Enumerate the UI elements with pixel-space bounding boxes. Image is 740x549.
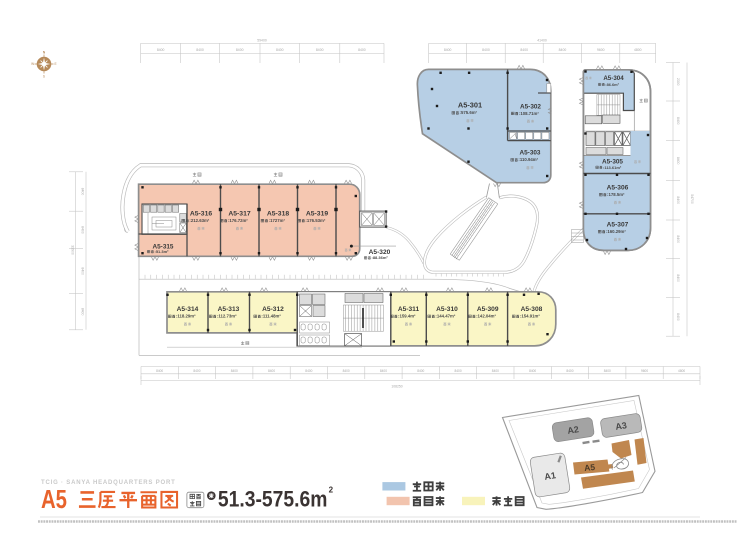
svg-text::159.4m²: :159.4m² xyxy=(398,314,416,319)
svg-text:A2: A2 xyxy=(567,424,580,436)
svg-text:8400: 8400 xyxy=(455,369,462,373)
svg-text:8400: 8400 xyxy=(676,235,680,243)
svg-text:8400: 8400 xyxy=(358,48,366,52)
svg-text::111.48m²: :111.48m² xyxy=(261,314,281,319)
svg-text:51.3-575.6m: 51.3-575.6m xyxy=(218,487,328,512)
svg-text:A5-319: A5-319 xyxy=(306,211,329,218)
svg-text:A5: A5 xyxy=(41,484,67,514)
svg-text:E: E xyxy=(55,62,57,66)
svg-text:8400: 8400 xyxy=(196,48,204,52)
svg-text::142.04m²: :142.04m² xyxy=(476,314,496,319)
svg-text:8400: 8400 xyxy=(343,369,350,373)
svg-text:8400: 8400 xyxy=(81,188,85,196)
svg-text:A5-310: A5-310 xyxy=(436,306,458,313)
svg-text:A5: A5 xyxy=(584,462,596,473)
svg-text:2: 2 xyxy=(329,485,334,494)
svg-text:A5-301: A5-301 xyxy=(458,101,482,110)
svg-text:8400: 8400 xyxy=(492,369,499,373)
svg-text:8400: 8400 xyxy=(559,48,567,52)
svg-text:8400: 8400 xyxy=(268,369,275,373)
svg-text:8400: 8400 xyxy=(520,48,528,52)
svg-text:8400: 8400 xyxy=(316,48,324,52)
svg-text:A3: A3 xyxy=(615,420,628,432)
svg-text::112.73m²: :112.73m² xyxy=(217,314,237,319)
svg-text:33900: 33900 xyxy=(71,245,75,255)
svg-text:8400: 8400 xyxy=(305,369,312,373)
svg-text:8400: 8400 xyxy=(676,157,680,165)
svg-text::154.91m²: :154.91m² xyxy=(520,314,540,319)
svg-text:W: W xyxy=(31,62,34,66)
svg-text::176.72m²: :176.72m² xyxy=(228,218,248,223)
svg-text:A5-311: A5-311 xyxy=(398,306,420,313)
svg-text:8400: 8400 xyxy=(529,369,536,373)
svg-text::178.5m²: :178.5m² xyxy=(607,192,625,197)
svg-text:54700: 54700 xyxy=(690,194,694,204)
svg-text:9600: 9600 xyxy=(641,369,648,373)
svg-text:8400: 8400 xyxy=(81,226,85,234)
svg-text:2300: 2300 xyxy=(676,78,680,86)
svg-text:S: S xyxy=(43,74,45,78)
svg-text:8400: 8400 xyxy=(676,313,680,321)
svg-text:59400: 59400 xyxy=(257,38,267,42)
svg-text:8400: 8400 xyxy=(676,117,680,125)
svg-text:A5-302: A5-302 xyxy=(520,103,541,110)
svg-text:8400: 8400 xyxy=(380,369,387,373)
svg-text:A5-309: A5-309 xyxy=(477,306,499,313)
svg-text::113.61m²: :113.61m² xyxy=(603,165,622,170)
svg-text:8400: 8400 xyxy=(81,267,85,275)
svg-text:A1: A1 xyxy=(544,470,557,482)
svg-text:8400: 8400 xyxy=(604,369,611,373)
svg-text:A5-316: A5-316 xyxy=(190,211,213,218)
svg-text::110.94m²: :110.94m² xyxy=(518,157,538,162)
svg-text:A5-317: A5-317 xyxy=(228,211,251,218)
svg-text:41400: 41400 xyxy=(537,38,547,42)
svg-text:A5-313: A5-313 xyxy=(218,306,240,313)
svg-text:8400: 8400 xyxy=(676,274,680,282)
svg-text:A5-307: A5-307 xyxy=(607,222,629,229)
svg-text:4800: 4800 xyxy=(634,48,642,52)
svg-text:8400: 8400 xyxy=(156,369,163,373)
svg-text:8400: 8400 xyxy=(236,48,244,52)
svg-text::88.36m²: :88.36m² xyxy=(372,255,389,260)
svg-text::575.6m²: :575.6m² xyxy=(460,110,478,115)
svg-text:108250: 108250 xyxy=(391,385,402,389)
svg-text:8400: 8400 xyxy=(482,48,490,52)
svg-text:A5-303: A5-303 xyxy=(520,150,541,157)
svg-text:8400: 8400 xyxy=(276,48,284,52)
svg-text:4800: 4800 xyxy=(678,369,685,373)
svg-text:8400: 8400 xyxy=(193,369,200,373)
svg-text::51.3m²: :51.3m² xyxy=(155,249,170,254)
svg-text:8400: 8400 xyxy=(81,308,85,316)
svg-text:8400: 8400 xyxy=(566,369,573,373)
svg-text:A5-308: A5-308 xyxy=(521,306,543,313)
svg-text::86.6m²: :86.6m² xyxy=(605,82,619,87)
svg-text::108.71m²: :108.71m² xyxy=(519,111,539,116)
svg-text:8400: 8400 xyxy=(231,369,238,373)
svg-text::118.29m²: :118.29m² xyxy=(176,314,196,319)
svg-text:A5-306: A5-306 xyxy=(607,185,629,192)
svg-text::1727m²: :1727m² xyxy=(269,218,286,223)
svg-text:8400: 8400 xyxy=(417,369,424,373)
svg-text:8400: 8400 xyxy=(676,196,680,204)
svg-text:A5-312: A5-312 xyxy=(262,306,284,313)
svg-text::160.29m²: :160.29m² xyxy=(606,229,626,234)
svg-text::176.53m²: :176.53m² xyxy=(305,218,325,223)
svg-text:8400: 8400 xyxy=(157,48,165,52)
svg-text:9600: 9600 xyxy=(597,48,605,52)
svg-text::144.47m²: :144.47m² xyxy=(435,314,455,319)
svg-text:A5-314: A5-314 xyxy=(177,306,199,313)
svg-text::212.63m²: :212.63m² xyxy=(189,218,209,223)
svg-text:A5-318: A5-318 xyxy=(267,211,290,218)
svg-text:8400: 8400 xyxy=(444,48,452,52)
